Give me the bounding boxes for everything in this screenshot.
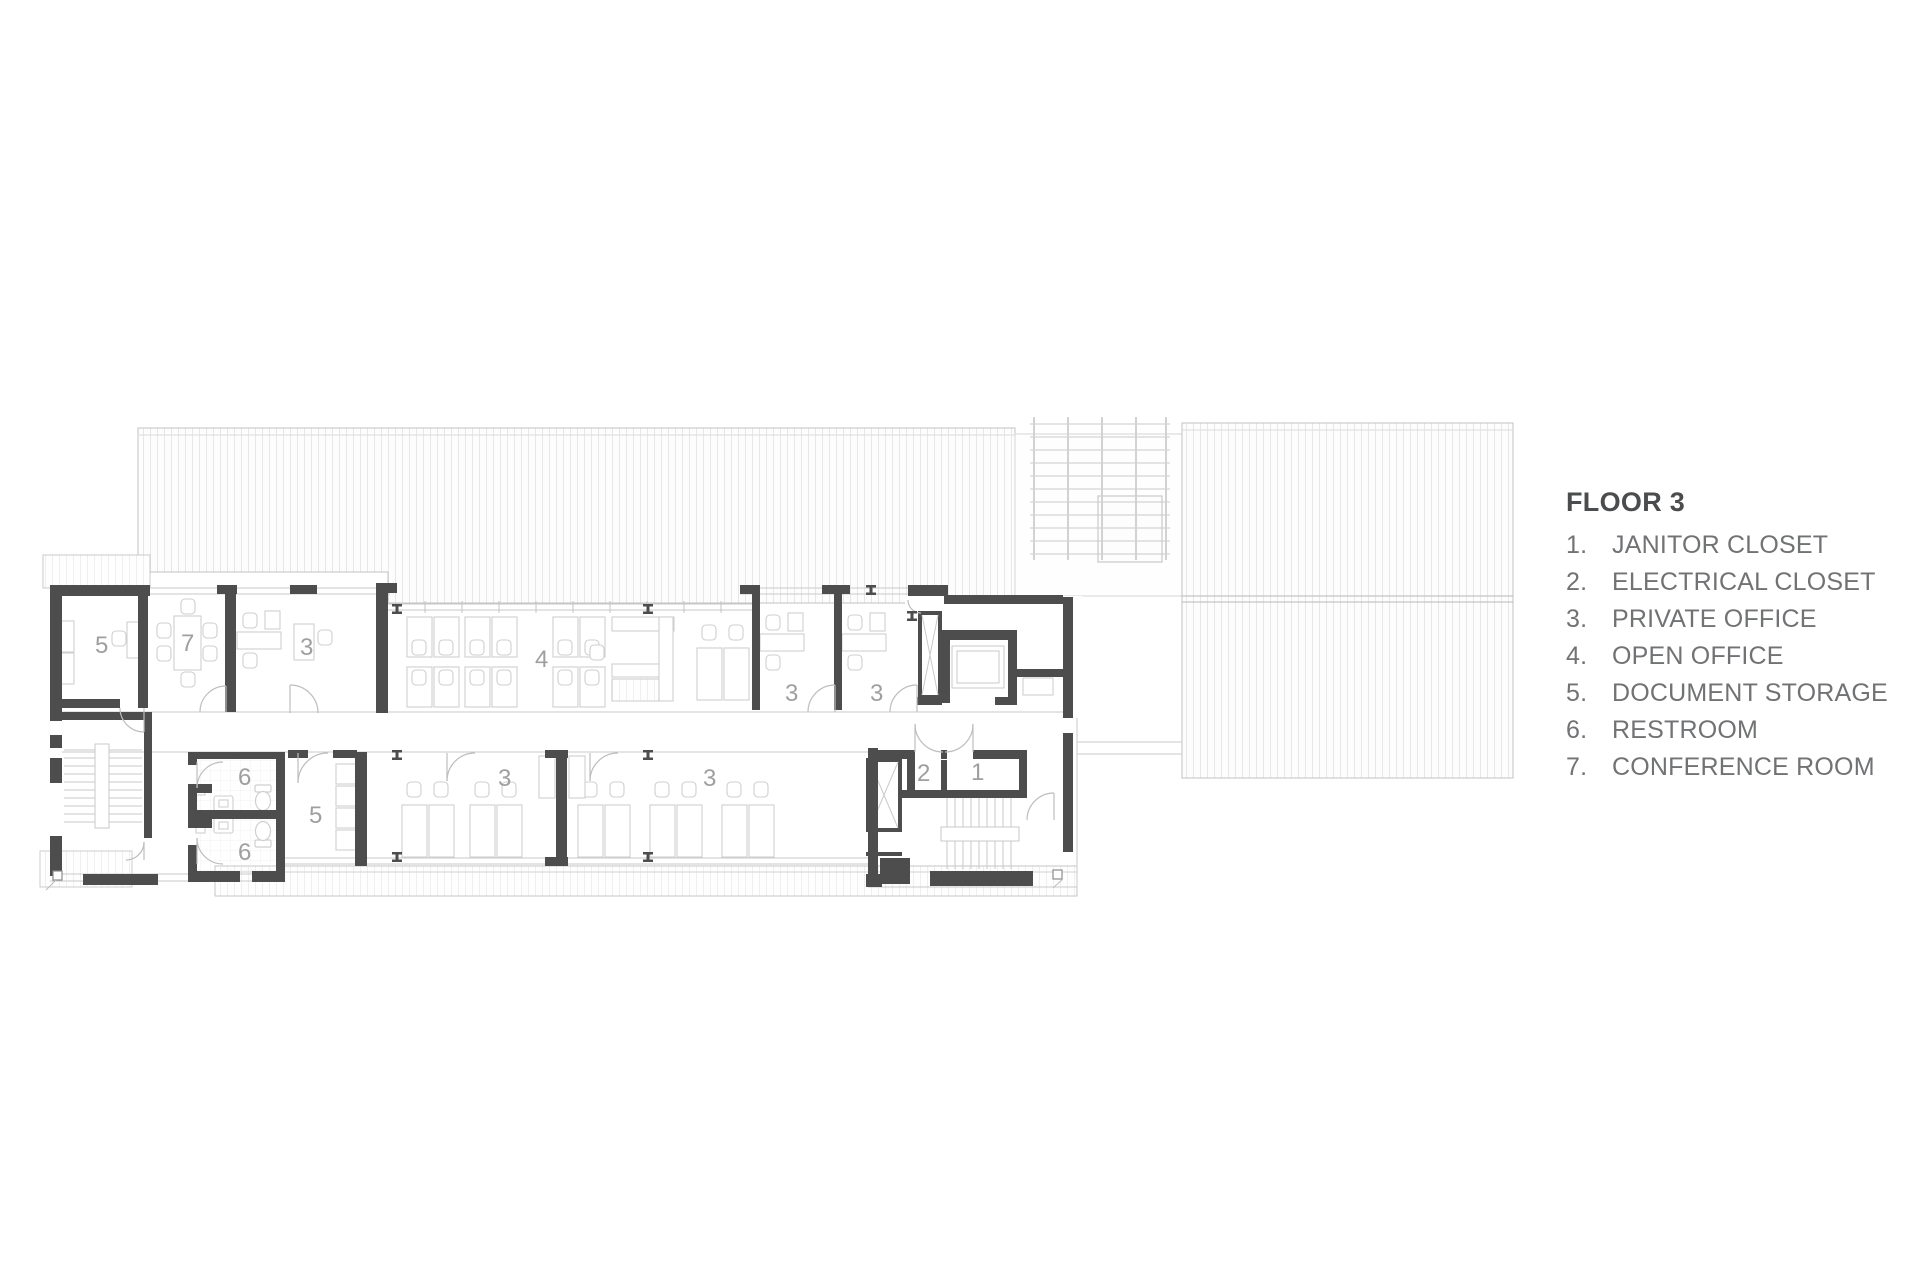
room-label-private-office-upper-3: 3 <box>870 680 883 707</box>
room-label-private-office-lower-2: 3 <box>703 765 716 792</box>
legend-item-label: JANITOR CLOSET <box>1612 531 1828 560</box>
legend-item-restroom: 6. RESTROOM <box>1566 712 1896 749</box>
legend-item-number: 5. <box>1566 679 1612 708</box>
room-label-document-storage-lower: 5 <box>309 802 322 829</box>
legend-item-label: CONFERENCE ROOM <box>1612 753 1875 782</box>
room-label-electrical-closet: 2 <box>917 760 930 787</box>
legend-item-electrical-closet: 2. ELECTRICAL CLOSET <box>1566 564 1896 601</box>
legend-item-label: RESTROOM <box>1612 716 1758 745</box>
legend-title: FLOOR 3 <box>1566 487 1896 518</box>
legend-item-label: OPEN OFFICE <box>1612 642 1784 671</box>
legend-list: 1. JANITOR CLOSET 2. ELECTRICAL CLOSET 3… <box>1566 527 1896 786</box>
legend-item-number: 2. <box>1566 568 1612 597</box>
entry-canopy <box>43 555 150 588</box>
legend-item-number: 6. <box>1566 716 1612 745</box>
room-label-janitor-closet: 1 <box>971 759 984 786</box>
room-label-restroom-lower: 6 <box>238 839 251 866</box>
room-label-private-office-upper-2: 3 <box>785 680 798 707</box>
legend-item-label: PRIVATE OFFICE <box>1612 605 1817 634</box>
room-label-private-office-upper-1: 3 <box>300 634 313 661</box>
legend-item-label: ELECTRICAL CLOSET <box>1612 568 1876 597</box>
room-label-restroom-upper: 6 <box>238 764 251 791</box>
room-label-document-storage-upper: 5 <box>95 632 108 659</box>
room-label-conference-room: 7 <box>181 630 194 657</box>
room-label-private-office-lower-1: 3 <box>498 765 511 792</box>
corner-marker-left <box>53 871 62 880</box>
legend-item-number: 1. <box>1566 531 1612 560</box>
legend-item-number: 7. <box>1566 753 1612 782</box>
legend-item-conference-room: 7. CONFERENCE ROOM <box>1566 749 1896 786</box>
legend-item-number: 3. <box>1566 605 1612 634</box>
legend-item-label: DOCUMENT STORAGE <box>1612 679 1888 708</box>
main-roof <box>138 428 1015 603</box>
legend-item-open-office: 4. OPEN OFFICE <box>1566 638 1896 675</box>
corner-marker-right <box>1053 870 1062 879</box>
legend: FLOOR 3 1. JANITOR CLOSET 2. ELECTRICAL … <box>1566 487 1896 786</box>
room-label-open-office: 4 <box>535 646 548 673</box>
legend-item-document-storage: 5. DOCUMENT STORAGE <box>1566 675 1896 712</box>
legend-item-private-office: 3. PRIVATE OFFICE <box>1566 601 1896 638</box>
legend-item-janitor-closet: 1. JANITOR CLOSET <box>1566 527 1896 564</box>
legend-item-number: 4. <box>1566 642 1612 671</box>
floor-plan-sheet: 5 7 3 4 3 3 6 5 6 3 3 2 1 FLOOR 3 1. JAN… <box>0 0 1920 1279</box>
right-roof <box>1182 423 1513 778</box>
